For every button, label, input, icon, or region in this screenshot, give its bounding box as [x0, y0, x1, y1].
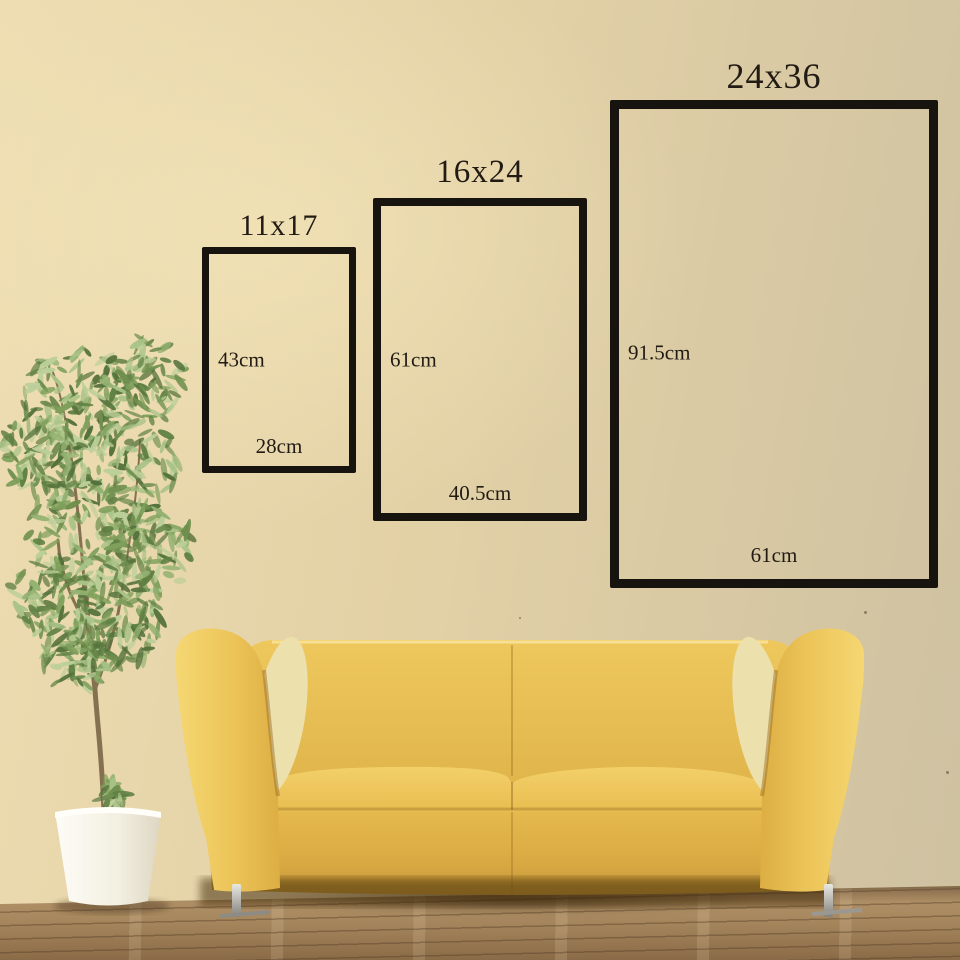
size-frame-24x36: 91.5cm 61cm [610, 100, 938, 588]
height-label-24x36: 91.5cm [628, 343, 690, 364]
wall-speck [946, 771, 949, 774]
width-label-11x17: 28cm [209, 436, 349, 457]
size-frame-11x17: 43cm 28cm [202, 247, 356, 473]
room-scene: 11x17 43cm 28cm 16x24 61cm 40.5cm 24x36 … [0, 0, 960, 960]
yellow-sofa [160, 598, 880, 938]
plant-pot [55, 807, 161, 906]
size-frame-16x24: 61cm 40.5cm [373, 198, 587, 521]
width-label-16x24: 40.5cm [381, 483, 579, 504]
height-label-11x17: 43cm [218, 350, 265, 371]
potted-plant [0, 290, 220, 930]
frame-title-16x24: 16x24 [373, 156, 587, 189]
height-label-16x24: 61cm [390, 349, 437, 370]
frame-title-24x36: 24x36 [610, 58, 938, 94]
width-label-24x36: 61cm [619, 545, 929, 566]
frame-title-11x17: 11x17 [202, 211, 356, 241]
sofa-underside-shadow [200, 878, 830, 906]
